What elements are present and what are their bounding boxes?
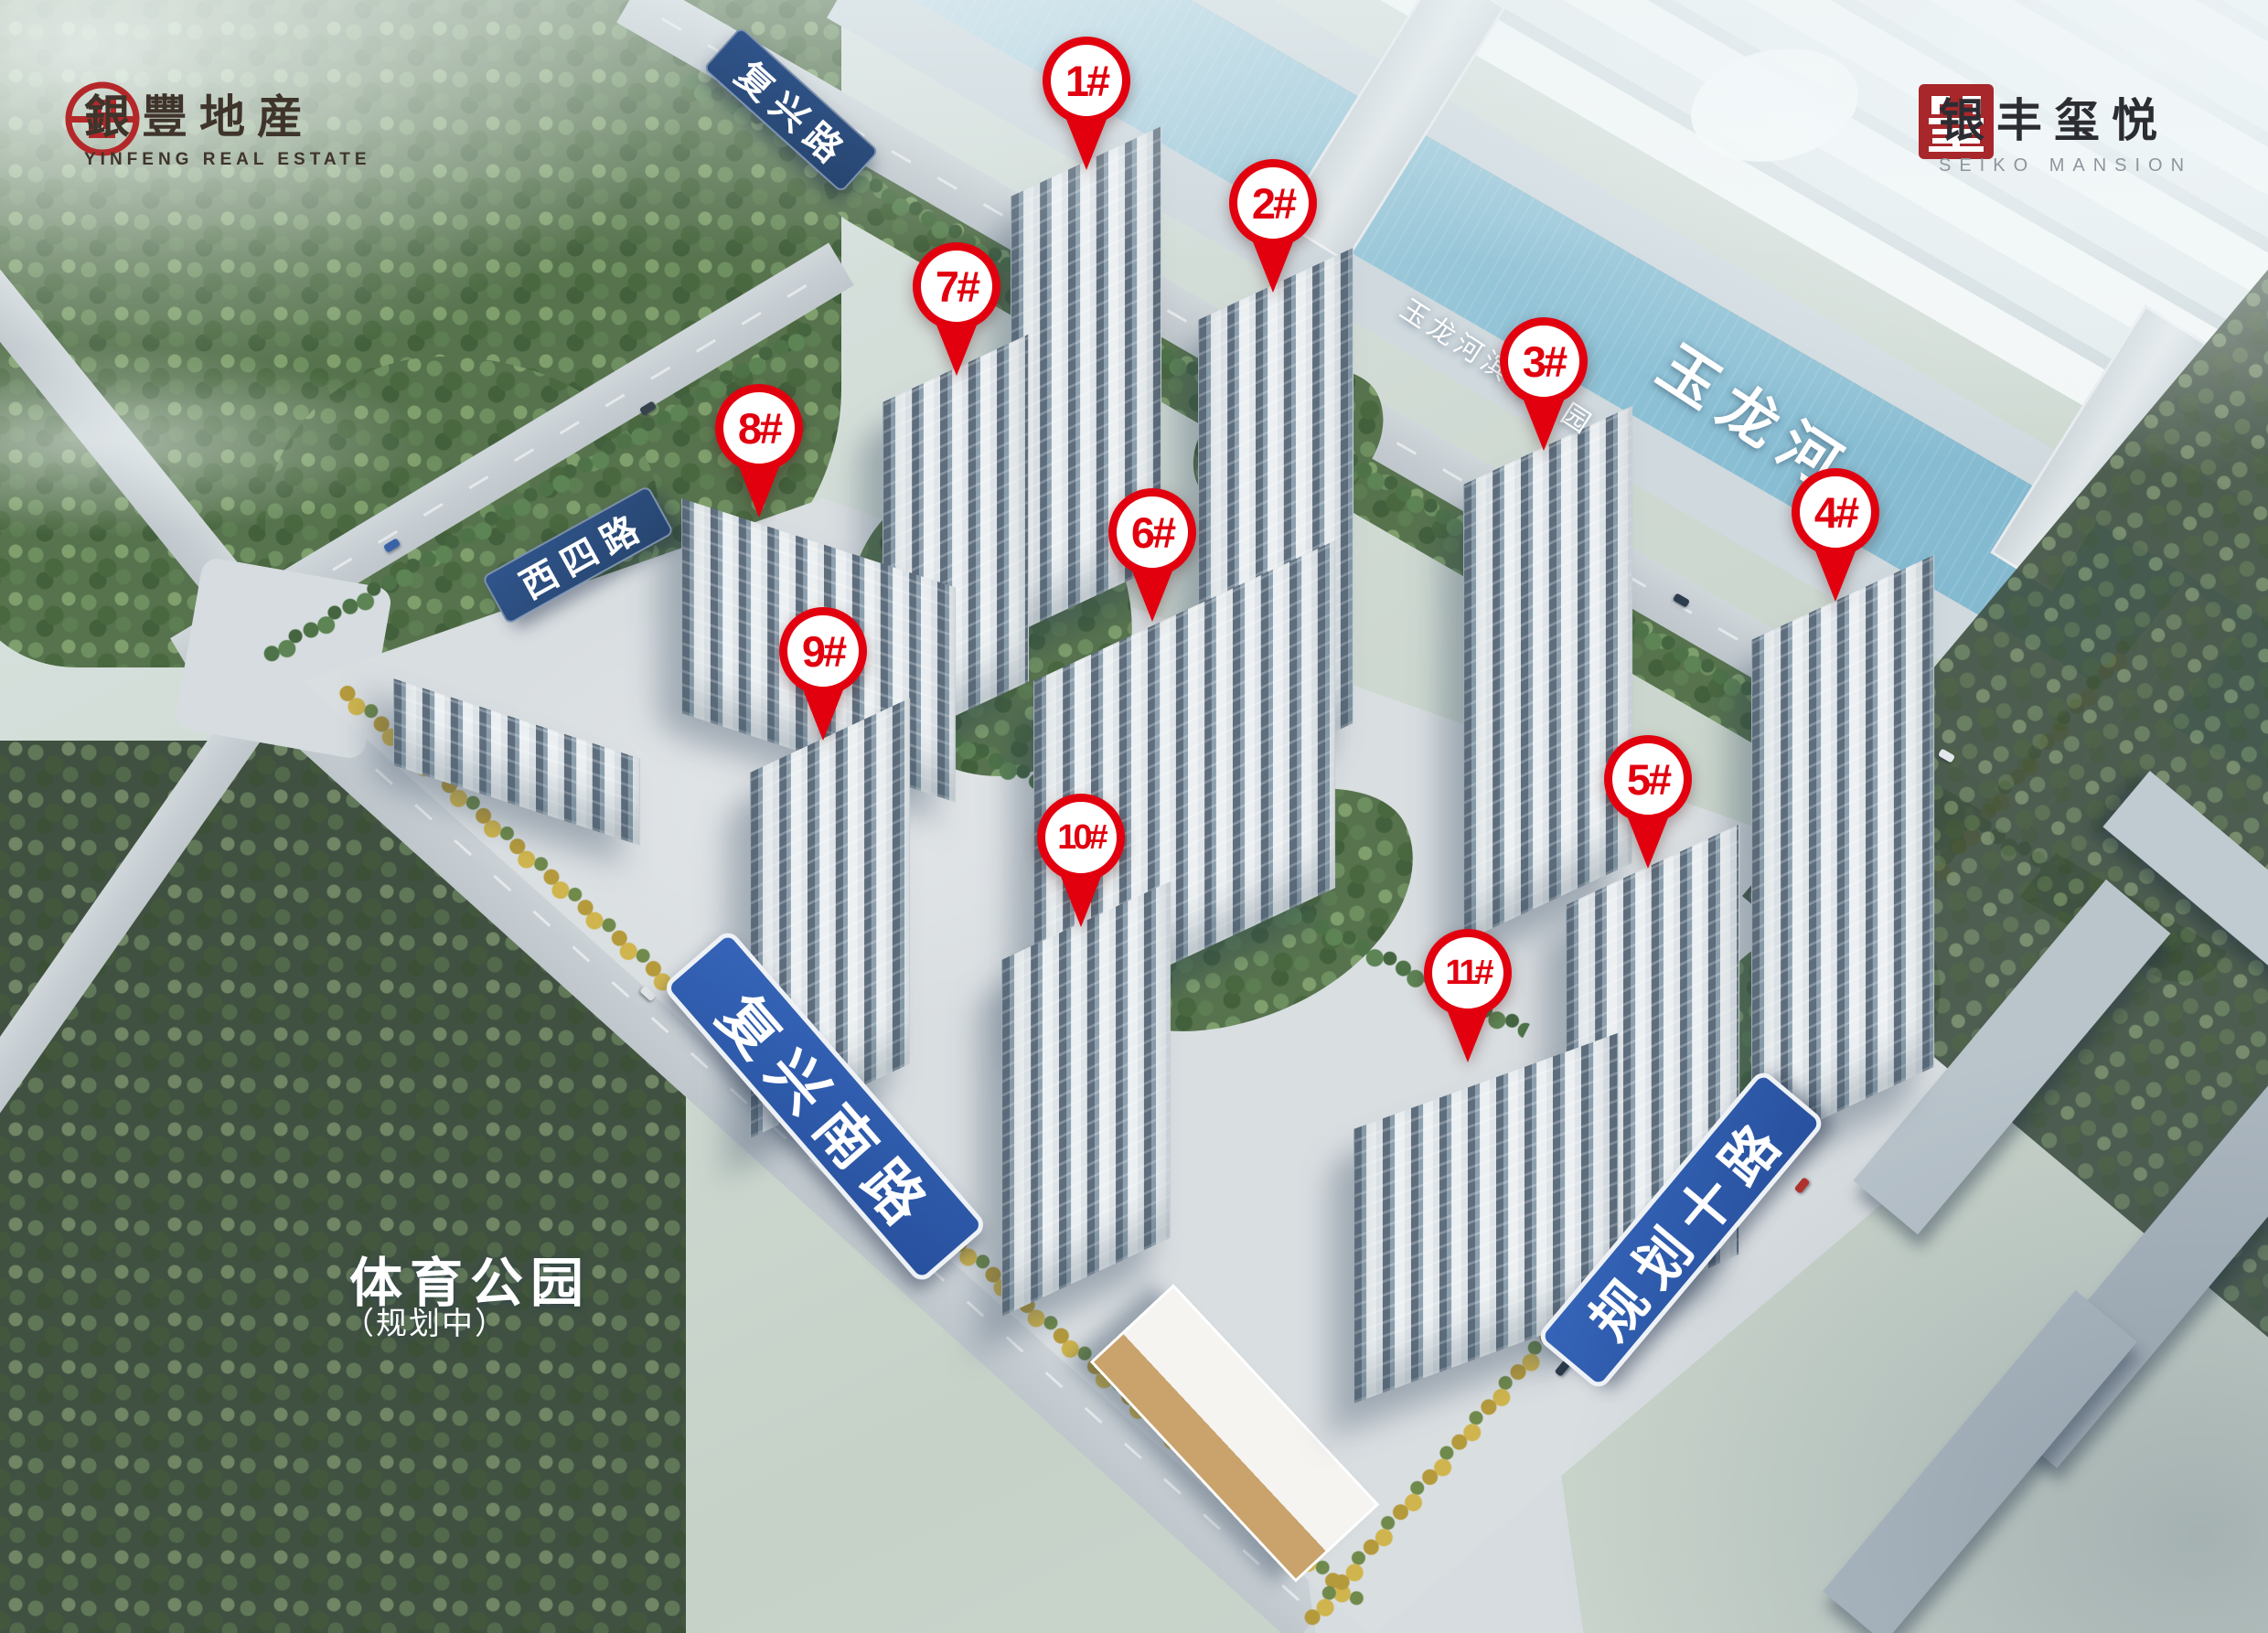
building-pin-5: 5# — [1604, 735, 1692, 874]
project-name-zh: 银丰玺悦 — [1939, 84, 2192, 150]
pin-tail — [936, 323, 978, 376]
building-pin-7: 7# — [913, 242, 1000, 381]
building-pin-1: 1# — [1043, 37, 1130, 176]
building-pin-10: 10# — [1037, 794, 1125, 933]
pin-tail — [1447, 1009, 1489, 1062]
building-pin-2: 2# — [1229, 159, 1317, 298]
pin-tail — [1627, 816, 1669, 869]
pin-tail — [1060, 874, 1102, 927]
pin-tail — [1131, 569, 1173, 622]
yinfeng-name-zh: 銀豐地産 — [84, 80, 371, 146]
project-logo: 银丰玺悦 SEIKO MANSION — [1919, 84, 2192, 176]
pin-tail — [738, 464, 780, 518]
pin-tail — [1523, 398, 1565, 451]
building-pin-11: 11# — [1424, 929, 1512, 1068]
building-pin-9: 9# — [779, 607, 867, 746]
pin-tail — [1065, 117, 1107, 170]
masterplan-rendering: 复兴路 西四路 复兴南路 规划十路 玉龙河 玉龙河滨河公园 体育公园 （规划中）… — [0, 0, 2268, 1633]
building-pin-8: 8# — [715, 384, 803, 523]
pin-tail — [802, 688, 844, 741]
project-name-en: SEIKO MANSION — [1939, 155, 2192, 176]
yinfeng-logo: 銀豐地産 YINFENG REAL ESTATE — [64, 80, 371, 170]
pin-tail — [1252, 240, 1294, 293]
building-pin-4: 4# — [1792, 468, 1879, 607]
building-pin-3: 3# — [1500, 317, 1588, 456]
building-pin-6: 6# — [1108, 488, 1196, 627]
yinfeng-name-en: YINFENG REAL ESTATE — [84, 150, 371, 170]
district-slab-3 — [1823, 1290, 2137, 1633]
pin-tail — [1814, 549, 1856, 602]
